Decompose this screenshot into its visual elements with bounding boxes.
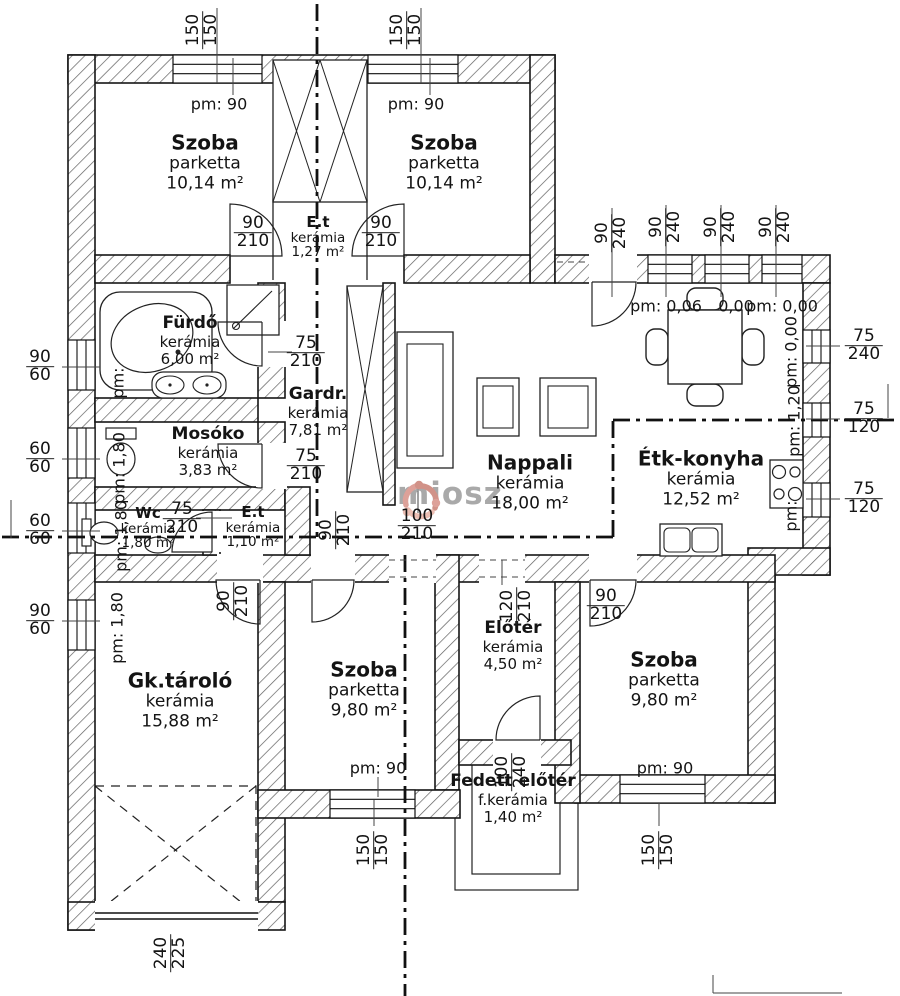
pm-label-gk-tarolo: pm: 1,80 — [108, 592, 127, 664]
dim-door-gardr: 75210 — [287, 448, 325, 484]
dim-bottom-window-right: 150150 — [641, 831, 677, 869]
dim-right-window-3: 75120 — [845, 481, 883, 517]
dim-left-window-1: 9060 — [26, 349, 54, 385]
room-label-gk-tarolo: Gk.tároló kerámia 15,88 m² — [128, 670, 233, 733]
dim-top-window-2: 150150 — [389, 11, 425, 49]
room-label-szoba-bottom-right: Szoba parketta 9,80 m² — [628, 649, 700, 712]
room-label-mosoko: Mosóko kerámia 3,83 m² — [172, 425, 245, 480]
pm-label-kitchen-1: pm: 0,06 — [630, 297, 702, 316]
room-label-nappali: Nappali kerámia 18,00 m² — [487, 452, 573, 515]
dim-opening-hall: 90210 — [318, 511, 354, 549]
dim-right-window-1: 75240 — [845, 328, 883, 364]
room-label-szoba-top-mid: Szoba parketta 10,14 m² — [405, 132, 482, 195]
floorplan-canvas: miosz Szoba parketta 10,14 m² Szoba park… — [0, 0, 900, 996]
dim-opening-nappali: 100210 — [398, 508, 436, 544]
room-label-et-top: E.t kerámia 1,27 m² — [291, 215, 346, 259]
pm-label-szoba-br: pm: 90 — [637, 759, 694, 778]
pm-label-szoba-bm: pm: 90 — [350, 759, 407, 778]
room-label-et-small: E.t kerámia 1,10 m² — [226, 505, 281, 549]
dim-right-window-2: 75120 — [845, 401, 883, 437]
pm-label-kitchen-right-1: pm: 0,00 — [782, 316, 801, 388]
dim-bottom-window-mid: 150150 — [356, 831, 392, 869]
room-label-furdo: Fürdő kerámia 6,00 m² — [160, 314, 221, 369]
room-label-szoba-bottom-mid: Szoba parketta 9,80 m² — [328, 659, 400, 722]
room-label-eloter: Előtér kerámia 4,50 m² — [483, 619, 544, 674]
pm-label-kitchen-right-2: pm: 1,20 — [785, 385, 804, 457]
dim-door-szoba-tm: 90210 — [362, 215, 400, 251]
room-label-etk-konyha: Étk-konyha kerámia 12,52 m² — [638, 448, 764, 511]
pm-label-wc: pm: 1,80 — [112, 500, 131, 572]
dim-garage-door: 240225 — [153, 934, 189, 972]
dim-door-szoba-br: 90210 — [587, 588, 625, 624]
pm-label-furdo: pm: — [109, 367, 128, 398]
dim-top-window-1: 150150 — [185, 11, 221, 49]
pm-label-szoba-tl: pm: 90 — [191, 95, 248, 114]
dim-kitchen-window-2: 90240 — [703, 208, 739, 246]
dim-kitchen-window-1: 90240 — [648, 208, 684, 246]
pm-label-mosoko: pm: 1,80 — [110, 432, 129, 504]
dim-door-szoba-tl: 90210 — [234, 215, 272, 251]
pm-label-kitchen-right-3: pm: — [782, 500, 801, 531]
dim-left-window-4: 9060 — [26, 603, 54, 639]
dim-door-wc: 75210 — [163, 501, 201, 537]
dim-door-furdo: 75210 — [287, 335, 325, 371]
dim-main-entrance-door: 100240 — [494, 753, 530, 791]
dim-kitchen-door: 90240 — [594, 214, 630, 252]
dim-door-gk: 90210 — [216, 582, 252, 620]
dim-left-window-2: 6060 — [26, 441, 54, 477]
pm-label-szoba-tm: pm: 90 — [388, 95, 445, 114]
room-label-szoba-top-left: Szoba parketta 10,14 m² — [166, 132, 243, 195]
dim-kitchen-window-3: 90240 — [758, 208, 794, 246]
pm-label-kitchen-3: pm: 0,00 — [746, 297, 818, 316]
room-label-gardr: Gardr. kerámia 7,81 m² — [288, 385, 349, 440]
dim-left-window-3: 6060 — [26, 513, 54, 549]
dim-opening-eloter: 120210 — [499, 587, 535, 625]
